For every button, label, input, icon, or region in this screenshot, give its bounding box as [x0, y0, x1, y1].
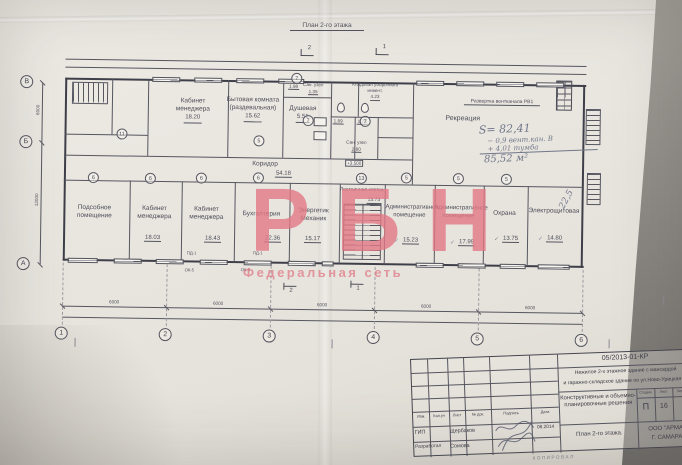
entrance-stairs: [72, 82, 108, 105]
room-label-corridor: Коридор: [232, 160, 298, 169]
room-name: Сан. узел: [339, 140, 373, 146]
dimension-value: 12000: [34, 189, 39, 211]
axis-circle: А: [17, 257, 30, 270]
handwritten-area-calculation: S= 82,41 − 0,9 вент.кан. В + 4,01 тумба …: [479, 120, 598, 166]
elevation-mark: +3.500: [345, 160, 363, 167]
window: [538, 264, 570, 269]
toilet-fixture: [361, 103, 369, 113]
dimension-value: 6000: [103, 299, 125, 304]
partition: [412, 83, 415, 185]
signature: [491, 417, 536, 453]
vent-development-label: Развертка вентканала РВ1: [464, 98, 540, 106]
section-mark: [350, 284, 363, 285]
shower-stall: [313, 131, 326, 140]
tb-section-title: Конструктивные и объемно-планировочные р…: [559, 393, 636, 410]
room-name: Душевая: [280, 105, 326, 114]
tb-sheet-label: Лист: [654, 389, 672, 394]
room-label: Подсобное помещение: [66, 204, 122, 221]
tb-col-header: Лист: [449, 413, 465, 418]
tb-line: [412, 381, 558, 387]
tb-line: [427, 359, 431, 457]
window: [416, 81, 444, 86]
section-mark-number: 1: [383, 44, 386, 50]
window: [236, 78, 264, 83]
window: [156, 259, 184, 264]
window: [496, 82, 524, 87]
partition: [527, 186, 529, 266]
tb-role: Разработал: [415, 444, 451, 451]
window: [200, 260, 228, 265]
external-stairs-lower: [587, 173, 601, 205]
room-label: Кладовая уборочного инвент. 4.23: [350, 82, 400, 102]
window: [536, 82, 564, 87]
axis-leader: [478, 268, 480, 330]
pencil-tick: [332, 339, 333, 348]
axis-leader: [166, 264, 168, 326]
room-name: Кладовая уборочного инвент.: [350, 82, 400, 94]
photo-of-floor-plan-drawing: { "caption": "План 2-го этажа", "waterma…: [0, 0, 682, 465]
tb-col-header: № док.: [465, 412, 491, 418]
room-area: 1.35: [308, 89, 319, 96]
room-label: Электрощитовая: [528, 207, 578, 216]
wall-left: [63, 78, 68, 261]
tb-line: [637, 396, 682, 399]
pencil-tick: [663, 296, 664, 305]
axis-circle: 2: [159, 328, 172, 341]
section-mark-number: 1: [356, 286, 359, 292]
axis-circle: В: [20, 75, 33, 88]
door-tag: ПД-1: [186, 250, 198, 255]
pencil-checkmark: ✓: [538, 235, 543, 242]
wall-tag: 7: [360, 116, 371, 127]
axis-circle: 4: [367, 331, 380, 344]
axis-circle: 6: [575, 334, 588, 347]
room-label: Бытовая комната (раздевальная) 15.62: [224, 96, 282, 123]
dimension-value: 6000: [207, 301, 229, 306]
room-area: 1.89: [333, 118, 344, 124]
tb-line: [412, 368, 558, 374]
tb-line: [560, 420, 682, 426]
section-mark: [283, 286, 296, 287]
tb-sheet-value: 16: [655, 402, 673, 411]
axis-circle: 3: [263, 329, 276, 342]
tb-role: ГИП: [415, 429, 449, 437]
watermark-logo-text: РБН: [250, 176, 518, 266]
tb-drawing-title: План 2-го этажа.: [561, 430, 638, 440]
dimension-line: [62, 317, 583, 325]
window-tag: ОК-5: [184, 267, 195, 272]
room-label: Сан. узел 1.35: [300, 82, 326, 96]
room-name: Сан. узел: [300, 82, 326, 88]
wall-tag: 6: [196, 173, 207, 184]
partition: [64, 134, 147, 136]
room-area: 18.03: [144, 235, 161, 242]
title-block: 05/2013-01-КР Нежилое 2-х этажное здание…: [410, 349, 682, 457]
room-area: 18.43: [204, 236, 221, 243]
room-label: Кабинет менеджера: [128, 205, 180, 222]
dimension-value: 6000: [35, 99, 40, 121]
partition: [234, 182, 236, 262]
partition: [377, 137, 413, 139]
window: [194, 77, 222, 82]
room-name: Бытовая комната (раздевальная): [224, 96, 282, 113]
wall-tag: 6: [88, 172, 99, 183]
window: [456, 81, 484, 86]
axis-circle: 1: [55, 327, 68, 340]
tb-line: [447, 359, 451, 457]
room-label: Кабинет менеджера: [180, 205, 232, 222]
watermark-subtitle: Федеральная сеть: [243, 265, 403, 280]
tb-line: [412, 394, 558, 400]
axis-circle: Б: [19, 135, 32, 148]
wall-tag: 6: [145, 173, 156, 184]
partition: [111, 78, 113, 134]
room-name: Кабинет менеджера: [164, 97, 222, 114]
toilet-fixture: [337, 102, 345, 112]
tb-col-header: Дата: [531, 410, 559, 416]
tb-company-line1: ООО "АРМА": [638, 425, 682, 434]
tb-col-header: Изм.: [413, 414, 429, 419]
window: [152, 77, 180, 82]
room-area: 1.98: [288, 84, 299, 90]
drawing-caption: План 2-го этажа: [290, 22, 364, 31]
pencil-tick: [609, 339, 610, 348]
room-area: 2.80: [351, 146, 362, 153]
room-area: 14.80: [546, 235, 563, 242]
section-mark: [376, 54, 389, 55]
tb-date: 08.2014: [532, 425, 560, 432]
project-name-line2: и гаражно-складское здание по ул.Ново-Ур…: [559, 376, 682, 387]
section-mark-number: 2: [289, 288, 292, 294]
axis-circle: 5: [471, 332, 484, 345]
window: [114, 258, 142, 263]
tb-col-header: Кол.уч: [429, 414, 449, 419]
dimension-value: 6000: [311, 302, 333, 307]
section-mark-number: 2: [308, 45, 311, 51]
room-label: Сан. узел 2.80: [339, 140, 373, 154]
axis-leader: [582, 270, 584, 332]
tb-stage-label: Стадия: [636, 390, 654, 395]
room-area: 15.62: [244, 113, 261, 122]
tb-stage-value: П: [637, 401, 655, 412]
tb-name: Щербаков: [450, 427, 492, 435]
dimension-value: 6000: [415, 304, 437, 309]
tb-col-header: Подпись: [491, 411, 531, 417]
wall-tag: 11: [116, 128, 127, 139]
partition: [283, 97, 331, 99]
axis-leader: [62, 263, 64, 325]
partition: [147, 79, 149, 156]
dimension-line: [65, 67, 586, 75]
room-area: 18.20: [184, 115, 201, 124]
room-area: 4.23: [369, 94, 380, 101]
pencil-tick: [75, 338, 76, 347]
dimension-line: [66, 59, 587, 67]
wall-tag: 7: [291, 73, 302, 84]
dimension-value: 6000: [519, 305, 541, 310]
section-mark: [301, 55, 314, 56]
tb-sheets-label: Листов: [672, 389, 682, 394]
tb-line: [463, 358, 467, 456]
window: [68, 258, 98, 263]
room-label: Кабинет менеджера 18.20: [164, 97, 222, 124]
wall-tag: 7: [303, 115, 314, 126]
tb-company-line2: Г. САМАРА: [638, 434, 682, 443]
wall-tag: 5: [253, 135, 264, 146]
tb-name: Сомова: [450, 442, 492, 450]
